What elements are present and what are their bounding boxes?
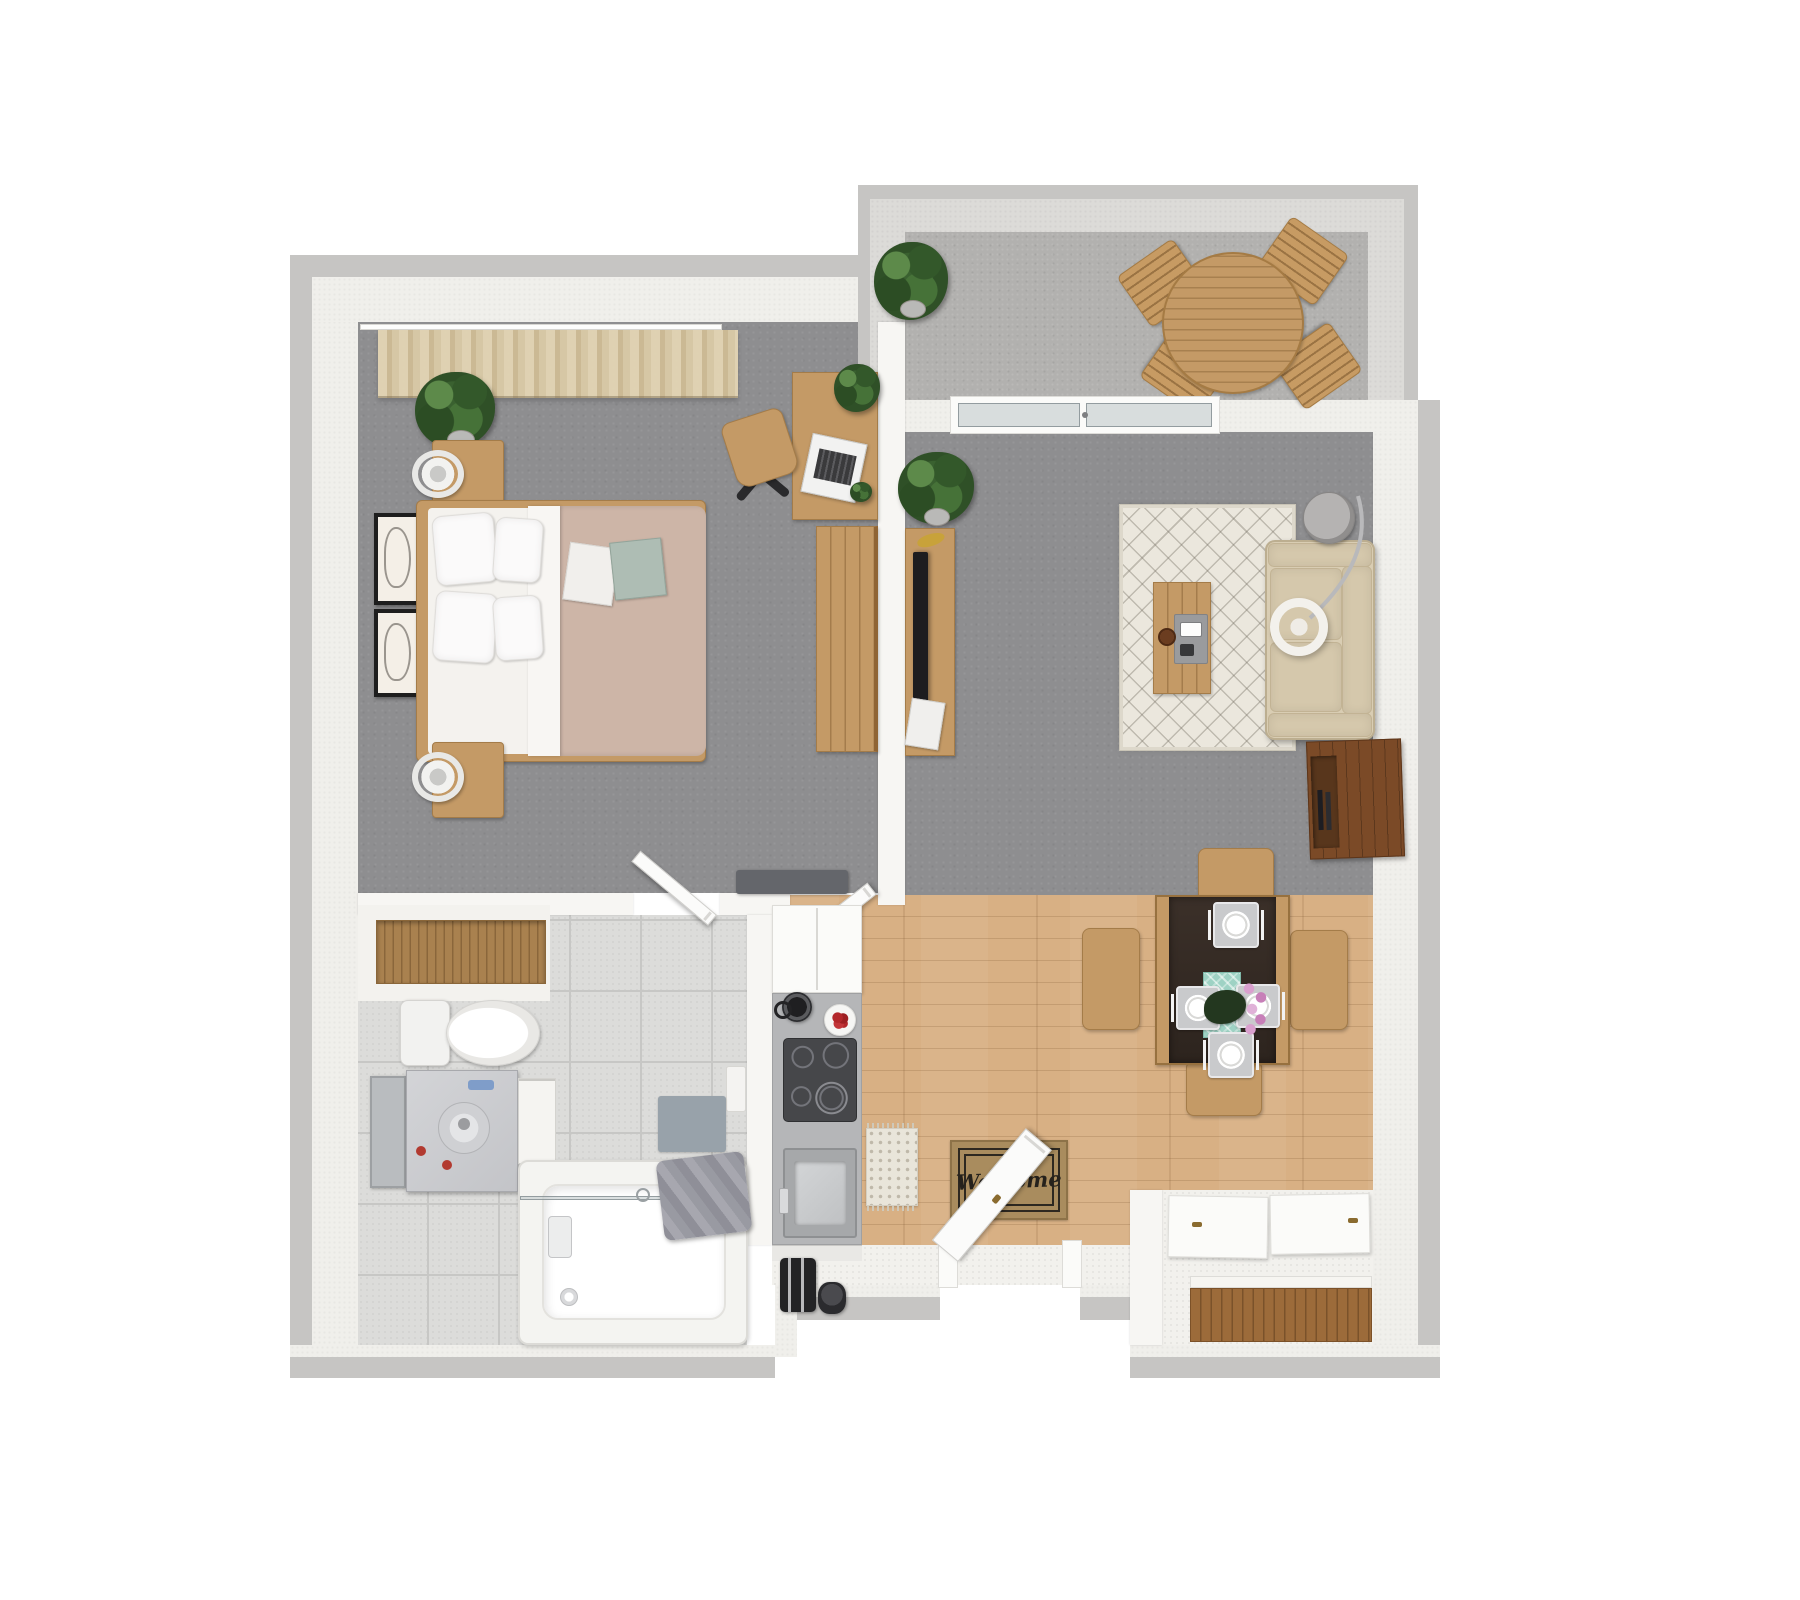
- sofa-arm-south: [1268, 713, 1372, 737]
- coffee-grinder: [818, 1282, 846, 1314]
- balcony-wall-right-edge: [1404, 185, 1418, 432]
- remote-control: [1180, 622, 1202, 637]
- red-knob: [416, 1146, 426, 1156]
- magazine-green: [609, 537, 667, 600]
- framed-art-top: [374, 513, 420, 605]
- kitchen-runner-rug: [866, 1128, 918, 1206]
- pillow: [431, 511, 499, 586]
- pillow: [492, 516, 544, 583]
- balcony-wall-top-edge: [858, 185, 1418, 199]
- bath-faucet: [548, 1216, 572, 1258]
- sink-faucet: [779, 1188, 789, 1214]
- wall-bathroom-kitchen: [747, 915, 772, 1245]
- wall-bottom-entry-face-right: [1080, 1285, 1135, 1297]
- closet-wood-shelf: [1190, 1288, 1372, 1342]
- door-post-right: [1062, 1240, 1082, 1288]
- vanity-drawers: [518, 1078, 556, 1164]
- wall-bottom-closet-edge: [1130, 1357, 1440, 1378]
- dining-chair-north: [1198, 848, 1274, 902]
- wall-top-edge: [290, 255, 870, 277]
- wall-ledge: [736, 870, 848, 894]
- balcony-wall-top-face: [858, 199, 1418, 232]
- cooktop: [783, 1038, 857, 1122]
- table-lamp-north: [412, 450, 464, 498]
- sliding-door-panel-right: [1086, 403, 1212, 427]
- table-lamp-south: [412, 752, 464, 802]
- place-setting-north: [1213, 902, 1259, 948]
- toilet-tank: [400, 1000, 450, 1066]
- closet-shelf-edge: [1190, 1276, 1372, 1288]
- wall-bottom-bathroom-edge: [290, 1357, 775, 1378]
- wall-bottom-closet-face: [1130, 1345, 1440, 1357]
- linen-closet-wood-shelf: [376, 920, 546, 984]
- dining-chair-west: [1082, 928, 1140, 1030]
- toiletry-item: [468, 1080, 494, 1090]
- balcony-wall-right-face: [1368, 199, 1404, 432]
- wardrobe: [816, 526, 878, 752]
- wood-bowl: [1158, 628, 1176, 646]
- wall-closet-divider: [1130, 1190, 1162, 1345]
- living-plant-pot: [924, 508, 950, 526]
- gray-towels: [655, 1151, 752, 1241]
- vanity-mirror-door: [370, 1076, 406, 1188]
- kitchen-sink: [783, 1148, 857, 1238]
- kettle: [782, 992, 812, 1022]
- cabinet-seam: [816, 908, 818, 990]
- pillow: [432, 590, 499, 664]
- closet-sliding-door-left: [1167, 1195, 1268, 1259]
- wall-left-edge: [290, 255, 312, 1378]
- phone: [1180, 644, 1194, 656]
- framed-art-bottom: [374, 609, 420, 697]
- wall-bottom-bathroom-face: [290, 1345, 775, 1357]
- wall-bedroom-living-divider: [878, 322, 905, 905]
- closet-sliding-door-right: [1269, 1193, 1370, 1255]
- floor-plan-canvas: Welcome: [0, 0, 1800, 1600]
- orchid-flowers: [1240, 980, 1270, 1038]
- red-knob: [442, 1160, 452, 1170]
- shower-head: [560, 1288, 578, 1306]
- bath-mat: [658, 1096, 726, 1152]
- balcony-table: [1162, 252, 1304, 394]
- arc-lamp-shade: [1270, 598, 1328, 656]
- closet-door-handle: [1192, 1222, 1202, 1227]
- tomato-plate: [824, 1004, 856, 1036]
- closet-door-handle: [1348, 1218, 1358, 1223]
- dining-chair-east: [1290, 930, 1348, 1030]
- glass-screen-handle: [636, 1188, 650, 1202]
- wall-right-edge: [1418, 400, 1440, 1378]
- wall-left-face: [312, 255, 358, 1378]
- pillow: [492, 594, 544, 661]
- toilet-bowl: [446, 1000, 540, 1066]
- wall-top-face: [312, 277, 870, 322]
- toaster: [780, 1258, 816, 1312]
- sliding-door-panel-left: [958, 403, 1080, 427]
- balcony-plant-pot: [900, 300, 926, 318]
- vanity-faucet: [458, 1118, 470, 1130]
- toilet-paper-holder: [726, 1066, 746, 1112]
- place-setting-south: [1208, 1032, 1254, 1078]
- wall-bottom-entry-edge-right: [1080, 1297, 1135, 1320]
- sliding-door-handle: [1082, 412, 1088, 418]
